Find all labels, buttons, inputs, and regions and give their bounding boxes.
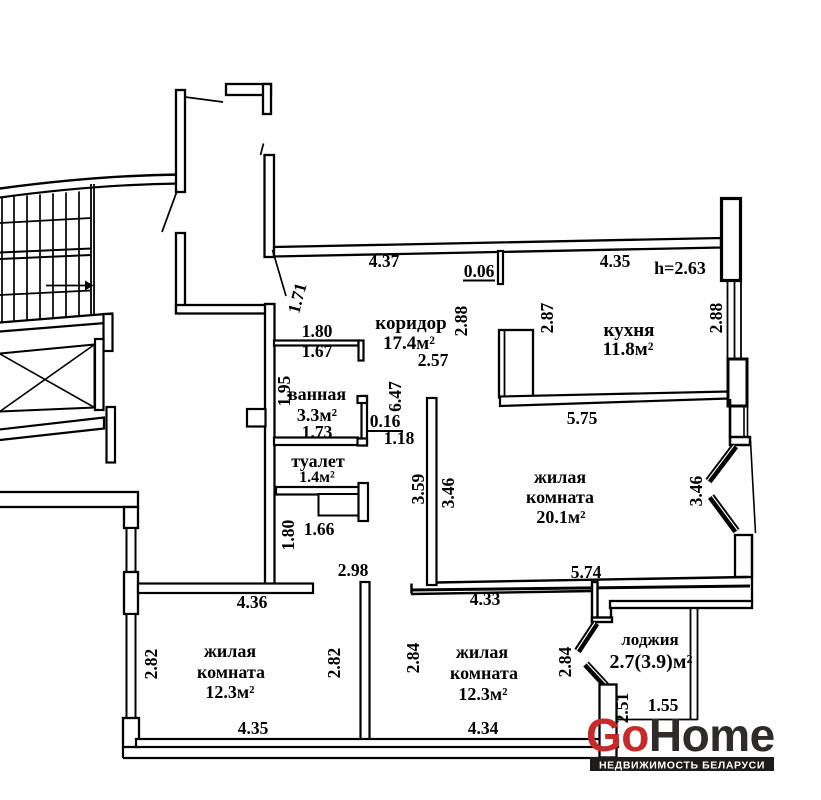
svg-text:17.4м²: 17.4м² <box>383 333 435 354</box>
svg-text:комната: комната <box>197 662 265 682</box>
svg-text:жилая: жилая <box>534 467 587 487</box>
svg-text:12.3м²: 12.3м² <box>458 684 507 704</box>
svg-text:НЕДВИЖИМОСТЬ БЕЛАРУСИ: НЕДВИЖИМОСТЬ БЕЛАРУСИ <box>599 760 765 772</box>
svg-text:3.3м²: 3.3м² <box>297 405 337 425</box>
svg-text:лоджия: лоджия <box>621 630 678 649</box>
svg-text:20.1м²: 20.1м² <box>536 507 585 527</box>
svg-text:2.82: 2.82 <box>324 648 344 679</box>
svg-text:5.75: 5.75 <box>567 408 598 428</box>
svg-text:1.67: 1.67 <box>302 341 333 361</box>
svg-text:1.71: 1.71 <box>283 281 310 316</box>
svg-text:1.4м²: 1.4м² <box>299 469 335 486</box>
svg-text:коридор: коридор <box>375 313 446 334</box>
svg-text:1.80: 1.80 <box>302 321 333 341</box>
svg-text:1.73: 1.73 <box>302 422 333 442</box>
svg-text:12.3м²: 12.3м² <box>205 682 254 702</box>
svg-text:2.7(3.9)м²: 2.7(3.9)м² <box>610 651 693 673</box>
svg-text:3.46: 3.46 <box>438 477 458 508</box>
svg-text:4.33: 4.33 <box>470 589 501 609</box>
svg-text:2.84: 2.84 <box>403 642 423 673</box>
svg-text:1.18: 1.18 <box>384 428 415 448</box>
svg-text:11.8м²: 11.8м² <box>603 339 654 360</box>
svg-text:0.06: 0.06 <box>464 261 495 281</box>
svg-text:3.46: 3.46 <box>686 475 706 506</box>
svg-text:туалет: туалет <box>291 451 345 471</box>
svg-text:2.88: 2.88 <box>706 302 726 333</box>
svg-text:4.34: 4.34 <box>468 718 499 738</box>
svg-text:1.66: 1.66 <box>304 519 335 539</box>
svg-text:5.74: 5.74 <box>571 562 602 582</box>
svg-text:2.87: 2.87 <box>537 302 557 333</box>
svg-text:комната: комната <box>450 663 518 683</box>
svg-text:комната: комната <box>526 487 594 507</box>
svg-text:4.37: 4.37 <box>369 251 400 271</box>
svg-text:2.98: 2.98 <box>338 560 369 580</box>
svg-text:4.36: 4.36 <box>237 592 268 612</box>
svg-text:2.84: 2.84 <box>555 646 575 677</box>
svg-text:ванная: ванная <box>288 384 346 404</box>
svg-text:кухня: кухня <box>604 320 655 341</box>
svg-text:жилая: жилая <box>204 641 257 661</box>
svg-text:1.80: 1.80 <box>278 519 298 550</box>
svg-text:GoHome: GoHome <box>586 709 775 761</box>
svg-text:h=2.63: h=2.63 <box>654 258 706 278</box>
svg-text:2.82: 2.82 <box>141 649 161 680</box>
svg-text:4.35: 4.35 <box>238 718 269 738</box>
svg-text:2.88: 2.88 <box>451 305 471 336</box>
svg-text:3.59: 3.59 <box>408 473 428 504</box>
svg-text:6.47: 6.47 <box>385 381 405 412</box>
svg-text:4.35: 4.35 <box>600 251 631 271</box>
svg-text:жилая: жилая <box>456 642 509 662</box>
